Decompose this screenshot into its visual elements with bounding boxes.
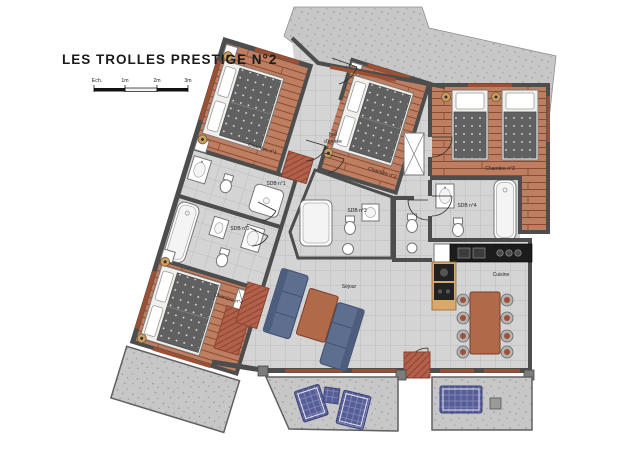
window [547, 96, 551, 142]
window [484, 369, 520, 373]
toilet [345, 216, 356, 235]
label-sejour: Séjour [342, 284, 357, 290]
twin-bed [502, 90, 538, 160]
page-title: LES TROLLES PRESTIGE N°2 [62, 52, 277, 67]
window [285, 369, 343, 373]
window [352, 369, 398, 373]
pedestal-sink [343, 244, 354, 255]
post [258, 366, 268, 376]
label-sdb4: SDB n°4 [457, 203, 476, 209]
svg-text:2m: 2m [153, 78, 160, 84]
label-sdb1: SDB n°1 [266, 181, 285, 187]
outdoor-lounge-set [440, 386, 482, 413]
svg-text:3m: 3m [184, 78, 191, 84]
outdoor-table [323, 387, 340, 404]
window [468, 84, 512, 88]
bedside-lamp [442, 93, 451, 102]
burner [515, 250, 521, 256]
label-chambre3: Chambre n°3 [485, 166, 515, 172]
outdoor-stool [490, 398, 501, 409]
scale-bar: Ech. 1m 2m 3m [92, 78, 192, 92]
floorplan-page: LES TROLLES PRESTIGE N°2 Ech. 1m 2m 3m S… [0, 0, 640, 452]
dishwasher [434, 283, 454, 300]
label-cuisine: Cuisine [493, 272, 510, 278]
kitchen-sink [473, 248, 485, 258]
window [440, 369, 474, 373]
svg-text:Ech.: Ech. [92, 78, 102, 84]
dining-table [470, 292, 500, 354]
bedside-lamp [492, 93, 501, 102]
label-hall-1: hall [329, 132, 337, 138]
burner [497, 250, 503, 256]
bathtub [494, 180, 516, 240]
balcony-middle [266, 377, 398, 431]
label-sdb3: SDB n°3 [347, 208, 366, 214]
toilet [453, 218, 464, 237]
floorplan-drawing: LES TROLLES PRESTIGE N°2 Ech. 1m 2m 3m S… [0, 0, 640, 452]
fridge [434, 244, 450, 262]
doormat [404, 352, 430, 378]
kitchen-sink [458, 248, 470, 258]
burner [506, 250, 512, 256]
label-sdb2: SDB n°2 [230, 226, 249, 232]
svg-text:1m: 1m [121, 78, 128, 84]
toilet [407, 214, 418, 233]
label-hall-2: d'entrée [324, 139, 342, 145]
round-sink [407, 243, 417, 253]
twin-bed [452, 90, 488, 160]
